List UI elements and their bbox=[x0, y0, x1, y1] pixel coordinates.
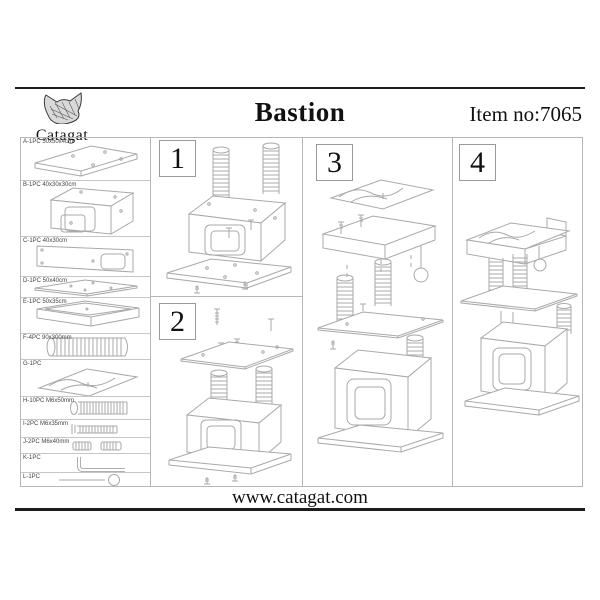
part-label: E-1PC 50x35cm bbox=[23, 299, 67, 305]
part-label: J-2PC M6x40mm bbox=[23, 439, 69, 445]
part-row: E-1PC 50x35cm bbox=[21, 298, 150, 334]
part-label: G-1PC bbox=[23, 361, 41, 367]
part-label: A-1PC 50x50x4cm bbox=[23, 139, 73, 145]
scratch-post-icon bbox=[256, 366, 272, 405]
step-3-column: 3 bbox=[303, 138, 453, 486]
part-row: B-1PC 40x30x30cm bbox=[21, 181, 150, 237]
step-3-panel: 3 bbox=[303, 138, 452, 486]
bottom-rule bbox=[15, 508, 585, 511]
item-number: Item no:7065 bbox=[469, 102, 582, 127]
parts-list: A-1PC 50x50x4cm B-1PC 40x30x30cm bbox=[21, 138, 151, 486]
part-row: A-1PC 50x50x4cm bbox=[21, 138, 150, 181]
scratch-post-icon bbox=[337, 275, 353, 322]
instruction-sheet: Catagat Bastion Item no:7065 A-1PC 50x50… bbox=[0, 0, 600, 600]
part-label: K-1PC bbox=[23, 455, 41, 461]
part-label: B-1PC 40x30x30cm bbox=[23, 182, 76, 188]
step4-diagram bbox=[453, 138, 584, 486]
step-number: 4 bbox=[470, 146, 485, 180]
step-number-box: 2 bbox=[159, 303, 196, 340]
ball-toy-drawing bbox=[21, 473, 151, 487]
part-row: J-2PC M6x40mm bbox=[21, 438, 150, 454]
part-label: I-2PC M6x35mm bbox=[23, 421, 68, 427]
scratch-post-icon bbox=[263, 143, 279, 194]
part-label: C-1PC 40x30cm bbox=[23, 238, 67, 244]
scratch-post-icon bbox=[375, 259, 391, 306]
house-box-drawing bbox=[21, 181, 151, 236]
content-grid: A-1PC 50x50x4cm B-1PC 40x30x30cm bbox=[20, 137, 583, 487]
step-number: 3 bbox=[327, 146, 342, 180]
part-label: D-1PC 50x40cm bbox=[23, 278, 67, 284]
part-row: K-1PC bbox=[21, 454, 150, 473]
part-row: G-1PC bbox=[21, 360, 150, 397]
steps-1-2-column: 1 bbox=[151, 138, 303, 486]
part-label: F-4PC 90x300mm bbox=[23, 335, 72, 341]
part-row: L-1PC bbox=[21, 473, 150, 488]
step3-diagram bbox=[303, 138, 453, 486]
part-row: C-1PC 40x30cm bbox=[21, 237, 150, 277]
step-1-panel: 1 bbox=[151, 138, 302, 297]
step-2-panel: 2 bbox=[151, 297, 302, 486]
step-number-box: 4 bbox=[459, 144, 496, 181]
website-url: www.catagat.com bbox=[0, 487, 600, 509]
step-number-box: 3 bbox=[316, 144, 353, 181]
part-row: D-1PC 50x40cm bbox=[21, 277, 150, 298]
part-label: H-10PC M6x50mm bbox=[23, 398, 74, 404]
part-row: F-4PC 90x300mm bbox=[21, 334, 150, 360]
step-number: 2 bbox=[170, 305, 185, 339]
step-4-column: 4 bbox=[453, 138, 584, 486]
part-row: I-2PC M6x35mm bbox=[21, 420, 150, 438]
top-rule bbox=[15, 87, 585, 89]
part-row: H-10PC M6x50mm bbox=[21, 397, 150, 420]
step-number-box: 1 bbox=[159, 140, 196, 177]
step-4-panel: 4 bbox=[453, 138, 584, 486]
scratch-post-icon bbox=[213, 147, 229, 198]
step-number: 1 bbox=[170, 142, 185, 176]
part-label: L-1PC bbox=[23, 474, 40, 480]
